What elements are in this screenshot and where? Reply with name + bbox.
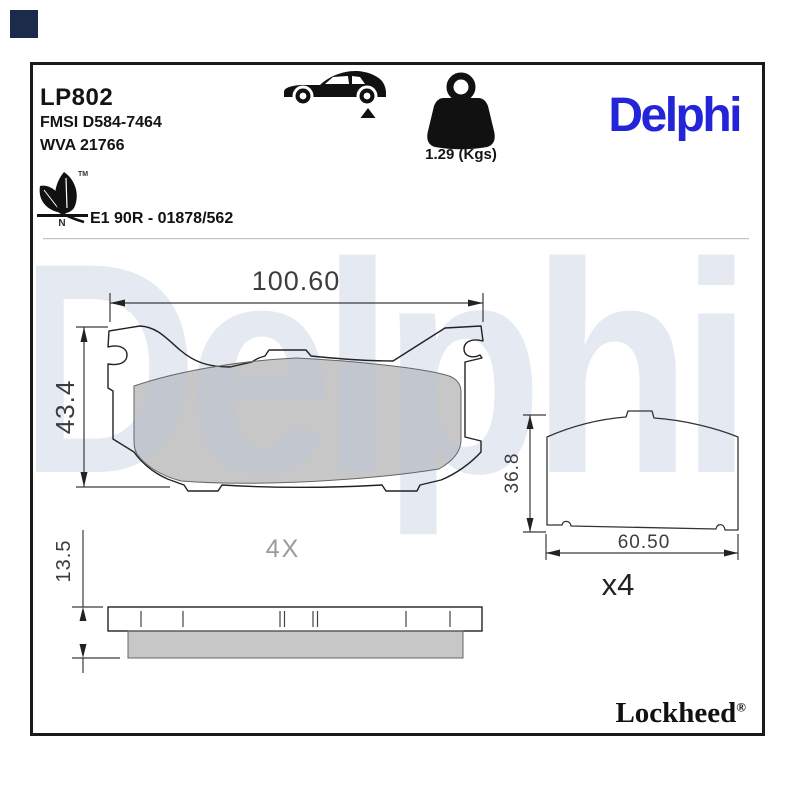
dim-back-width: 60.50 [594,532,694,554]
datasheet-page: Delphi [0,0,800,800]
corner-square [10,10,38,38]
fmsi-code: FMSI D584-7464 [40,114,162,132]
dim-back-height: 36.8 [488,448,538,498]
trademark-mark: TM [78,171,88,178]
quantity-back-label: x4 [578,567,658,603]
homologation-code: E1 90R - 01878/562 [90,210,233,228]
separator-line [43,238,749,240]
brand-logo: Delphi [568,92,740,140]
wva-code: WVA 21766 [40,137,124,155]
part-number: LP802 [40,84,113,112]
footer-brand-text: Lockheed [615,697,736,729]
footer-brand: Lockheed® [500,697,746,730]
dim-front-height: 43.4 [40,382,90,432]
quantity-side-label: 4X [243,535,323,564]
registered-mark: ® [736,699,746,714]
weight-label: 1.29 (Kgs) [403,146,519,163]
dim-front-width: 100.60 [246,266,346,297]
dim-side-thickness: 13.5 [39,536,89,586]
eco-letter: N [52,218,72,229]
content-frame [30,62,765,736]
